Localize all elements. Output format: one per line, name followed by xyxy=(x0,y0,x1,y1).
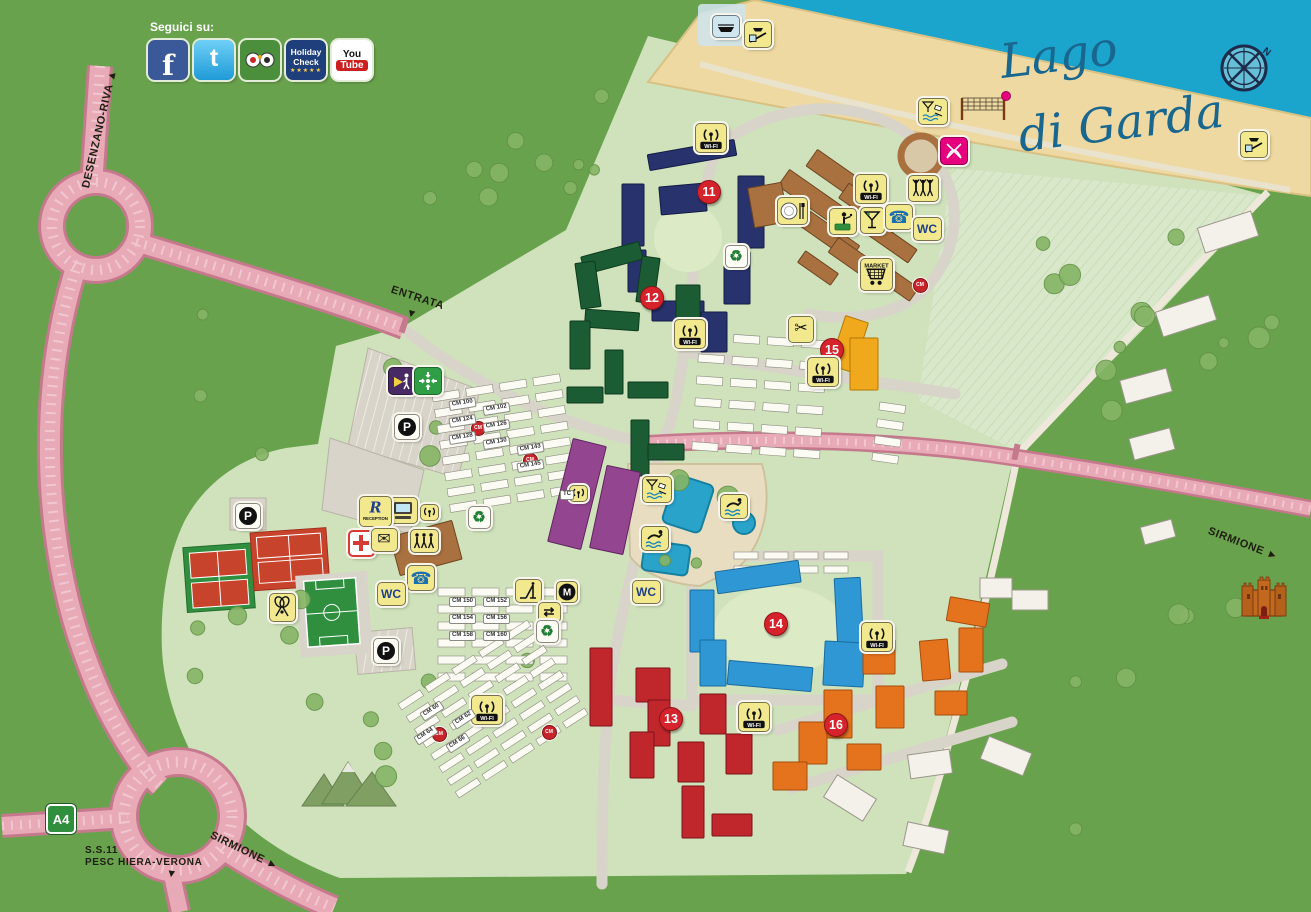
slipway-icon xyxy=(744,21,772,48)
entrata-arrow-icon: ▼ xyxy=(405,307,419,321)
lake-name-line2: di Garda xyxy=(1015,84,1226,164)
cm-icon: CM xyxy=(913,278,928,293)
road-label-desenzano: DESENZANO-RIVA ▲ xyxy=(80,68,119,189)
minigolf-icon: M xyxy=(556,581,578,603)
miniclub-icon xyxy=(410,529,439,553)
parking-icon: P xyxy=(373,638,399,664)
pitch-label: CM 154 xyxy=(449,614,476,624)
reception-icon: RRECEPTION xyxy=(359,496,392,527)
recycle-icon: ♻ xyxy=(536,620,559,643)
windsurf-icon xyxy=(940,137,968,165)
wifi-icon: WI-FI xyxy=(807,357,839,387)
wifi-icon: WI-FI xyxy=(471,695,503,725)
svg-text:WI-FI: WI-FI xyxy=(704,144,718,150)
pitch-label: CM 60 xyxy=(419,700,444,721)
castle-icon xyxy=(1240,576,1288,620)
sirmione-east-arrow-icon: ► xyxy=(1265,548,1280,563)
recycle-icon: ♻ xyxy=(725,245,748,268)
playground-icon xyxy=(515,579,542,603)
wifi-icon: WI-FI xyxy=(695,123,727,153)
recycle-icon: ♻ xyxy=(468,506,491,529)
swimmer-icon xyxy=(641,526,669,551)
svg-text:WI-FI: WI-FI xyxy=(816,378,830,384)
assembly-icon xyxy=(414,367,442,395)
resort-map: N Seguici su: f t Holiday Check ★★★★★ Yo… xyxy=(0,0,1311,912)
beachbar-icon xyxy=(918,98,948,125)
wc-icon: WC xyxy=(377,582,406,606)
market-icon: MARKET xyxy=(860,258,893,291)
svg-text:M: M xyxy=(563,588,571,599)
youtube-icon[interactable]: You Tube xyxy=(332,40,372,80)
pitch-label: CM 143 xyxy=(516,442,544,456)
wc-icon: WC xyxy=(632,580,661,604)
svg-text:WI-FI: WI-FI xyxy=(747,723,761,729)
pitch-label: CM 145 xyxy=(516,459,544,473)
a4-highway-badge: A4 xyxy=(46,804,76,834)
lake-name-line1: Lago xyxy=(997,21,1120,90)
phone-icon: ☎ xyxy=(885,204,913,230)
internet-icon xyxy=(388,497,418,524)
ss11-arrow-icon: ▼ xyxy=(165,867,177,880)
pitch-label: CM 160 xyxy=(483,631,510,641)
zone-badge-11: 11 xyxy=(697,180,721,204)
svg-text:P: P xyxy=(403,420,411,434)
pitch-label: TC xyxy=(560,490,574,500)
svg-text:R: R xyxy=(368,499,381,516)
holidaycheck-icon[interactable]: Holiday Check ★★★★★ xyxy=(286,40,326,80)
entertainment-icon xyxy=(908,175,939,202)
pitch-label: CM 100 xyxy=(448,397,476,411)
svg-text:P: P xyxy=(382,644,390,658)
social-follow-label: Seguici su: xyxy=(150,20,214,34)
svg-text:WI-FI: WI-FI xyxy=(683,340,697,346)
wifi-icon: WI-FI xyxy=(861,622,893,652)
swimmer-icon xyxy=(720,494,748,519)
scissors-icon: ✂ xyxy=(788,316,814,343)
twitter-icon[interactable]: t xyxy=(194,40,234,80)
slipway-icon xyxy=(1240,131,1268,158)
pitch-label: CM 128 xyxy=(448,431,476,445)
cm-icon: CM xyxy=(542,725,557,740)
pitch-label: CM 130 xyxy=(482,436,510,450)
parking-icon: P xyxy=(235,503,261,529)
wc-icon: WC xyxy=(913,217,942,241)
waiter-icon xyxy=(829,208,857,235)
desenzano-arrow-icon: ▲ xyxy=(105,68,119,82)
wifi-icon xyxy=(420,504,439,521)
pitch-label: CM 62 xyxy=(451,708,476,729)
restaurant-icon xyxy=(777,197,808,225)
pitch-label: CM 126 xyxy=(482,419,510,433)
wifi-icon: WI-FI xyxy=(855,174,887,204)
pitch-label: CM 150 xyxy=(449,597,476,607)
facebook-icon[interactable]: f xyxy=(148,40,188,80)
svg-text:WI-FI: WI-FI xyxy=(864,195,878,201)
tennis-icon xyxy=(269,593,296,622)
tripadvisor-owl-icon xyxy=(242,48,278,72)
tripadvisor-icon[interactable] xyxy=(240,40,280,80)
poolbar-icon xyxy=(642,476,672,503)
mail-icon: ✉ xyxy=(371,528,398,552)
pitch-label: CM 64 xyxy=(413,724,438,745)
pitch-label: CM 156 xyxy=(483,614,510,624)
pitch-label: CM 66 xyxy=(445,732,470,753)
zone-badge-16: 16 xyxy=(824,713,848,737)
svg-text:WI-FI: WI-FI xyxy=(480,716,494,722)
wifi-icon: WI-FI xyxy=(674,319,706,349)
zone-badge-13: 13 xyxy=(659,707,683,731)
road-label-ss11: S.S.11 PESC HIERA-VERONA xyxy=(85,845,202,869)
svg-text:WI-FI: WI-FI xyxy=(870,643,884,649)
zone-badge-14: 14 xyxy=(764,612,788,636)
road-label-entrata: ENTRATA xyxy=(389,284,445,312)
parking-icon: P xyxy=(394,414,420,440)
wifi-icon: WI-FI xyxy=(738,702,770,732)
svg-text:MARKET: MARKET xyxy=(864,263,889,269)
cocktail-icon xyxy=(860,207,885,234)
phone-icon: ☎ xyxy=(407,565,435,591)
security-icon xyxy=(388,367,416,395)
pitch-label: CM 102 xyxy=(482,402,510,416)
pitch-label: CM 152 xyxy=(483,597,510,607)
svg-text:RECEPTION: RECEPTION xyxy=(363,516,388,521)
road-label-sirmione-east: SIRMIONE ► xyxy=(1206,525,1280,563)
svg-text:P: P xyxy=(244,509,252,523)
social-bar: f t Holiday Check ★★★★★ You Tube xyxy=(148,40,372,80)
sirmione-south-arrow-icon: ► xyxy=(265,857,281,873)
pitch-label: CM 158 xyxy=(449,631,476,641)
boat-icon xyxy=(712,15,740,38)
road-label-sirmione-south: SIRMIONE ► xyxy=(208,829,280,872)
zone-badge-12: 12 xyxy=(640,286,664,310)
